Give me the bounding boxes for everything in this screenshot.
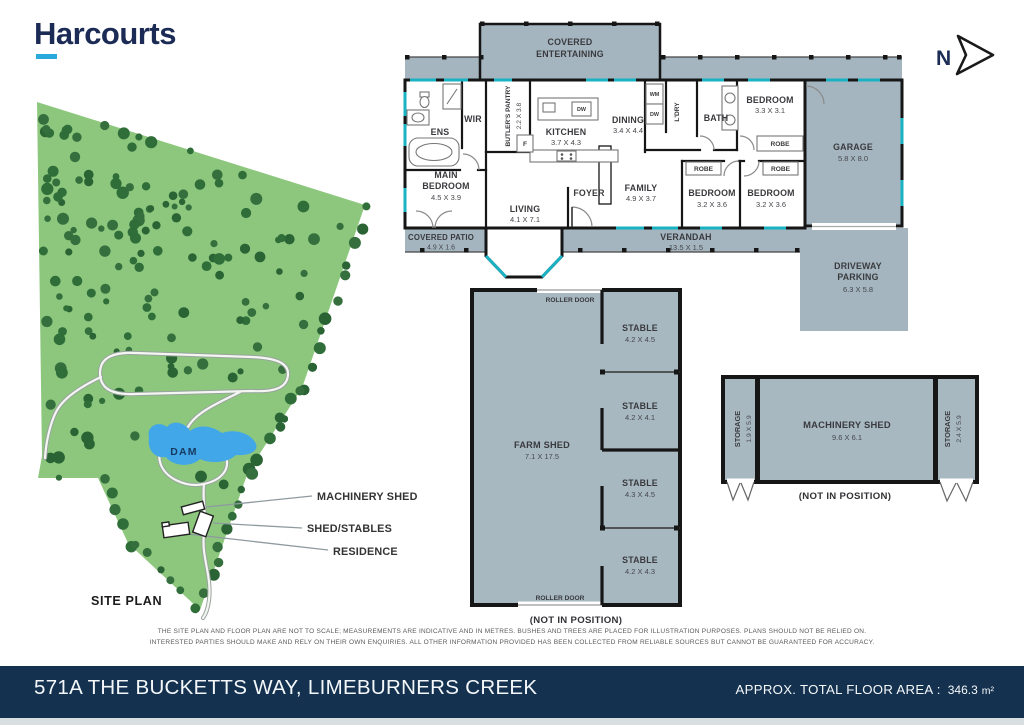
label-ens: ENS [431, 127, 450, 137]
kitchen-sink [543, 103, 555, 112]
label-verandah: VERANDAH [660, 232, 711, 242]
label-wm: WM [650, 92, 660, 98]
label-dw: DW [650, 112, 660, 118]
label-machinery-shed: MACHINERY SHED [803, 419, 891, 430]
label-stable-4-dims: 4.2 X 4.3 [625, 567, 655, 576]
label-bath: BATH [704, 113, 729, 123]
label-foyer: FOYER [573, 188, 605, 198]
label-garage-dims: 5.8 X 8.0 [838, 154, 868, 163]
north-arrow: N [936, 36, 993, 74]
label-living-dims: 4.1 X 7.1 [510, 215, 540, 224]
label-storage-left-dims: 1.9 X 5.9 [746, 415, 753, 442]
garage-area [805, 80, 902, 226]
label-robe-3: ROBE [771, 166, 791, 173]
house-floorplan: COVERED ENTERTAINING ENS WIR BUTLER'S PA… [405, 22, 908, 332]
bottom-strip [0, 718, 1024, 725]
stove [557, 151, 576, 161]
label-verandah-dims: 13.5 X 1.5 [669, 243, 703, 252]
floor-area: APPROX. TOTAL FLOOR AREA :346.3m² [736, 681, 994, 699]
property-address: 571A THE BUCKETTS WAY, LIMEBURNERS CREEK [34, 676, 537, 700]
label-main-bedroom-1: MAIN [434, 170, 457, 180]
label-dining-dims: 3.4 X 4.4 [613, 126, 643, 135]
label-robe-1: ROBE [770, 141, 790, 148]
label-stable-2-dims: 4.2 X 4.1 [625, 413, 655, 422]
label-farm-shed: FARM SHED [514, 440, 570, 450]
footer-bar: 571A THE BUCKETTS WAY, LIMEBURNERS CREEK… [0, 666, 1024, 718]
label-wir: WIR [464, 114, 482, 124]
label-butlers-pantry: BUTLER'S PANTRY [505, 85, 512, 147]
label-garage: GARAGE [833, 142, 873, 152]
callout-residence: RESIDENCE [333, 546, 398, 558]
label-stable-3-dims: 4.3 X 4.5 [625, 490, 655, 499]
label-fridge: F [523, 141, 527, 148]
brand-logo-underline [36, 54, 57, 59]
label-kitchen: KITCHEN [546, 127, 587, 137]
label-covered-entertaining-2: ENTERTAINING [536, 49, 604, 59]
label-machinery-shed-dims: 9.6 X 6.1 [832, 433, 862, 442]
label-driveway-dims: 6.3 X 5.8 [843, 285, 873, 294]
label-storage-right: STORAGE [943, 411, 952, 447]
label-bedroom-mid: BEDROOM [688, 188, 735, 198]
label-dw-island: DW [577, 107, 587, 113]
floorplan-page: Harcourts [0, 0, 1024, 725]
site-plan: DAM MACHINERY SHED SHED/STABLES RESIDENC… [37, 102, 418, 618]
label-butlers-pantry-dims: 2.2 X 3.8 [516, 102, 523, 129]
label-robe-2: ROBE [694, 166, 714, 173]
label-bedroom-right: BEDROOM [747, 188, 794, 198]
label-bedroom-right-dims: 3.2 X 3.6 [756, 200, 786, 209]
label-roller-door-top: ROLLER DOOR [546, 297, 595, 304]
label-farm-shed-dims: 7.1 X 17.5 [525, 452, 559, 461]
label-roller-door-bottom: ROLLER DOOR [536, 595, 585, 602]
dam-label: DAM [170, 446, 198, 458]
disclaimer-line-2: INTERESTED PARTIES SHOULD MAKE AND RELY … [0, 638, 1024, 649]
floor-area-unit: m² [982, 685, 994, 697]
label-stable-2: STABLE [622, 401, 658, 411]
label-kitchen-dims: 3.7 X 4.3 [551, 138, 581, 147]
site-plan-title: SITE PLAN [91, 594, 162, 608]
disclaimer: THE SITE PLAN AND FLOOR PLAN ARE NOT TO … [0, 627, 1024, 648]
label-living: LIVING [510, 204, 541, 214]
label-storage-left: STORAGE [733, 411, 742, 447]
label-covered-patio-dims: 4.9 X 1.6 [427, 245, 455, 252]
north-arrow-icon [957, 36, 993, 74]
label-bedroom-top-dims: 3.3 X 3.1 [755, 106, 785, 115]
floor-area-label: APPROX. TOTAL FLOOR AREA : [736, 682, 941, 697]
label-driveway-1: DRIVEWAY [834, 261, 882, 271]
label-bedroom-mid-dims: 3.2 X 3.6 [697, 200, 727, 209]
machinery-shed-plan: STORAGE 1.9 X 5.9 MACHINERY SHED 9.6 X 6… [723, 377, 977, 502]
label-storage-right-dims: 2.4 X 5.9 [956, 415, 963, 442]
label-main-bedroom-dims: 4.5 X 3.9 [431, 193, 461, 202]
label-main-bedroom-2: BEDROOM [422, 181, 469, 191]
label-covered-entertaining-1: COVERED [548, 37, 593, 47]
label-dining: DINING [612, 115, 644, 125]
label-machinery-not-in-position: (NOT IN POSITION) [799, 491, 892, 502]
label-family-dims: 4.9 X 3.7 [626, 194, 656, 203]
label-family: FAMILY [625, 183, 658, 193]
label-stable-1: STABLE [622, 323, 658, 333]
label-farm-not-in-position: (NOT IN POSITION) [530, 615, 623, 626]
plan-canvas: DAM MACHINERY SHED SHED/STABLES RESIDENC… [0, 0, 1024, 725]
label-bedroom-top: BEDROOM [746, 95, 793, 105]
label-covered-patio: COVERED PATIO [408, 233, 474, 242]
label-driveway-2: PARKING [837, 272, 878, 282]
label-stable-1-dims: 4.2 X 4.5 [625, 335, 655, 344]
disclaimer-line-1: THE SITE PLAN AND FLOOR PLAN ARE NOT TO … [0, 627, 1024, 638]
north-label: N [936, 47, 951, 70]
callout-machinery-shed: MACHINERY SHED [317, 491, 418, 503]
label-stable-4: STABLE [622, 555, 658, 565]
floor-area-value: 346.3 [948, 683, 978, 697]
brand-logo-text: Harcourts [34, 16, 176, 51]
brand-logo: Harcourts [34, 16, 176, 52]
label-laundry: L'DRY [674, 102, 681, 122]
farm-shed-plan: ROLLER DOOR ROLLER DOOR STABLE 4.2 X 4.5… [472, 286, 680, 626]
label-stable-3: STABLE [622, 478, 658, 488]
callout-shed-stables: SHED/STABLES [307, 523, 392, 535]
